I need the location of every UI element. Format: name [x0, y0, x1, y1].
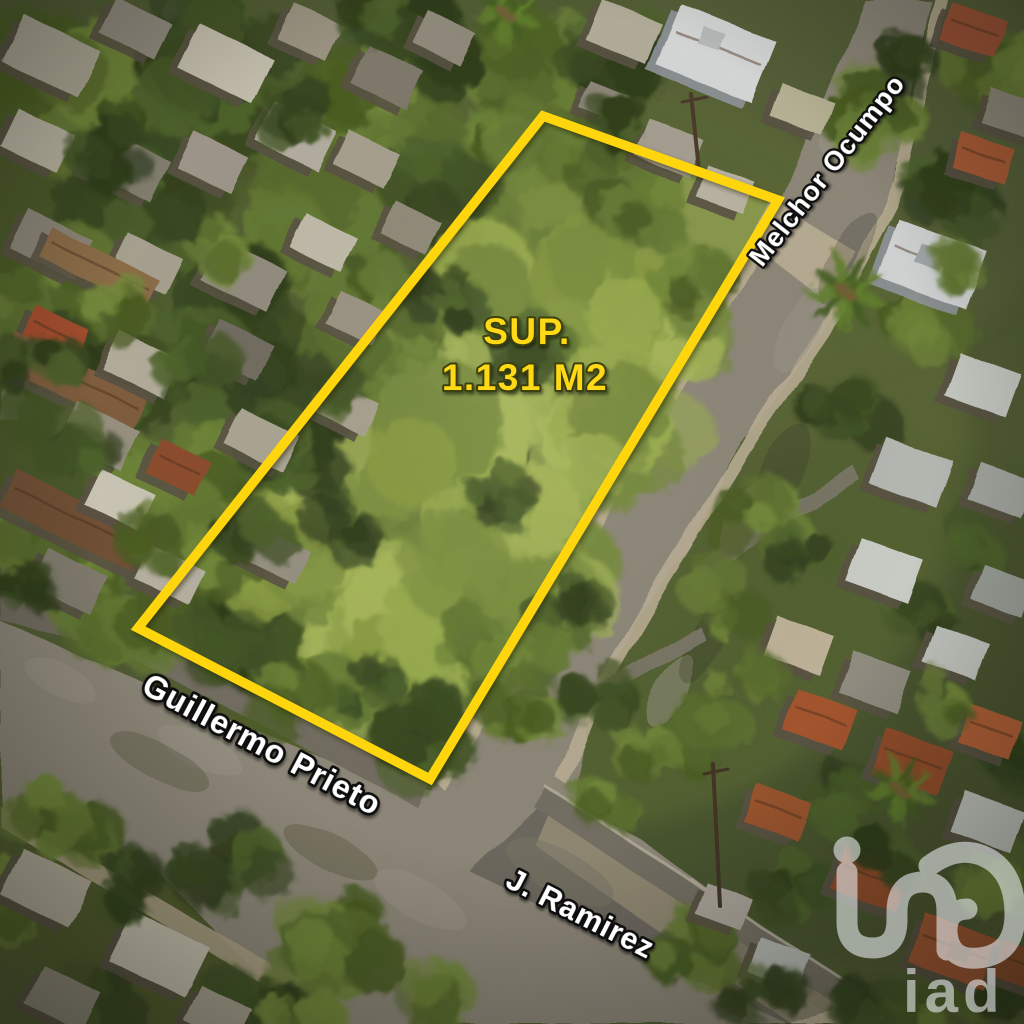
watermark-brand-text: iad [903, 958, 1005, 1024]
plot-area-label-line1: SUP. [483, 311, 571, 352]
watermark-logo-dot [834, 837, 861, 864]
scene-canvas: SUP. 1.131 M2 Melchor Ocumpo Guillermo P… [0, 0, 1024, 1024]
aerial-lot-illustration: SUP. 1.131 M2 Melchor Ocumpo Guillermo P… [0, 0, 1024, 1024]
plot-area-label-line2: 1.131 M2 [442, 357, 608, 398]
